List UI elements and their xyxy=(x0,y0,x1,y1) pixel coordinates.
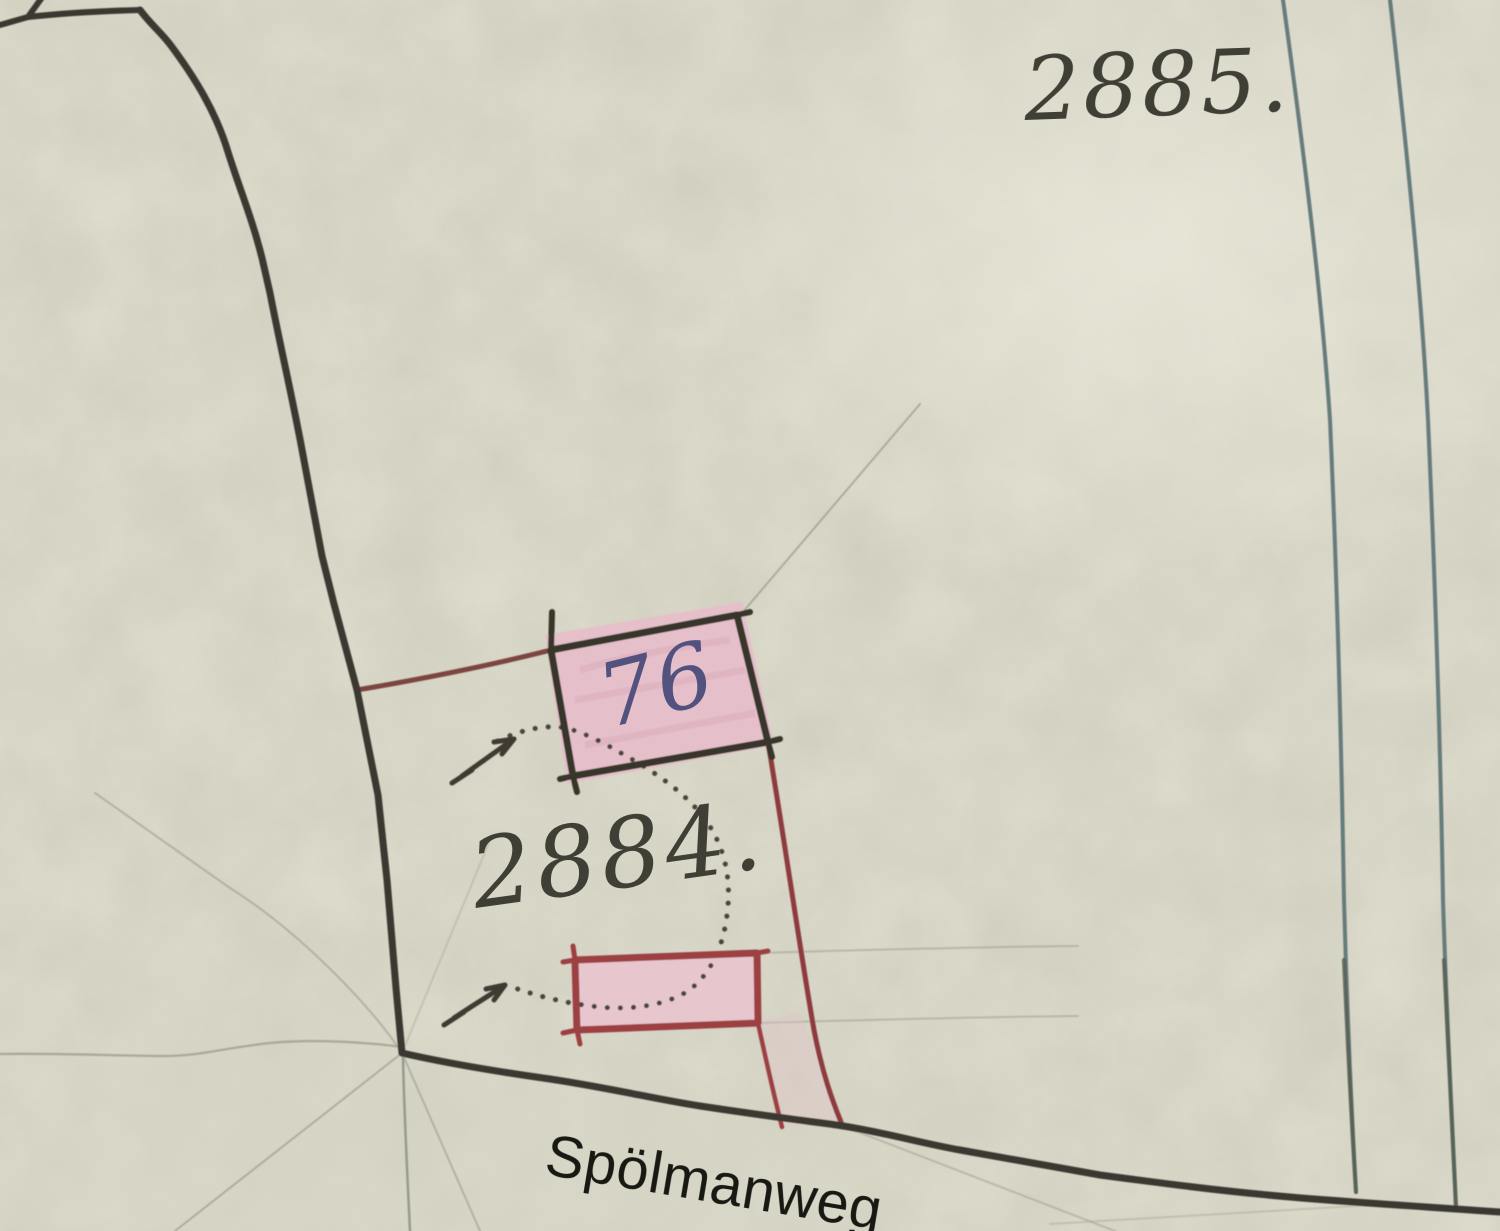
cadastral-map-scan: 2885. 2884. 76 Spölmanweg xyxy=(0,0,1500,1231)
parcel-label-2885: 2885. xyxy=(1021,29,1292,141)
map-canvas: 2885. 2884. 76 Spölmanweg xyxy=(0,0,1500,1231)
